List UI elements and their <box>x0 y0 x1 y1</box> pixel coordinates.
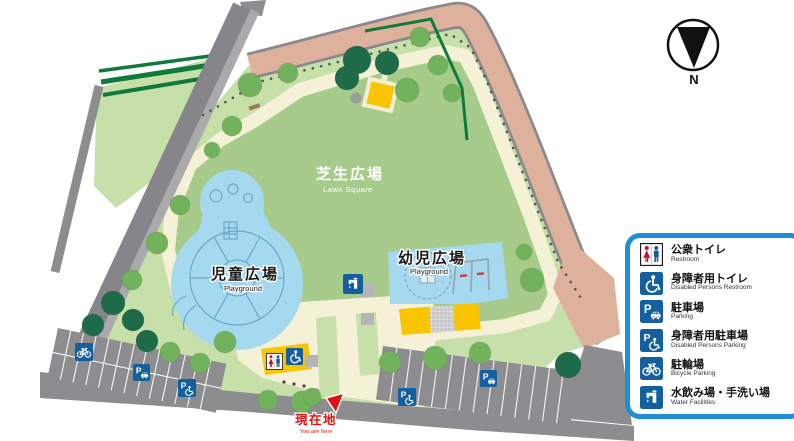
compass-n-label: N <box>689 72 698 87</box>
restroom-icon <box>640 243 663 266</box>
parking-icon <box>640 300 663 323</box>
water-facilities-icon <box>640 386 663 409</box>
park-map-page: P P <box>0 0 794 441</box>
legend-label-en: Restroom <box>671 257 726 264</box>
disabled-parking-icon <box>640 329 663 352</box>
children-plaza-label-ja: 児童広場 <box>210 265 279 283</box>
legend-label-en: Disabled Persons Restroom <box>671 285 752 292</box>
legend-label-en: Disabled Persons Parking <box>671 343 748 350</box>
restroom-icon <box>266 353 282 369</box>
legend-label-en: Parking <box>671 314 704 321</box>
current-location-label-en: You are here <box>300 429 333 435</box>
legend-item-disabled-parking: 身障者用駐車場 Disabled Persons Parking <box>640 329 794 352</box>
disabled-parking-icon <box>178 379 196 397</box>
water-facilities-icon <box>343 274 363 294</box>
compass: N <box>668 20 718 87</box>
children-plaza-label-en: Playground <box>224 284 262 293</box>
lawn-square-label-en: Lawn Square <box>323 185 373 194</box>
current-location-label-ja: 現在地 <box>295 412 337 427</box>
legend-label-en: Bicycle Parking <box>671 371 715 378</box>
toddler-plaza-label-ja: 幼児広場 <box>398 249 466 267</box>
legend-label-en: Water Facilities <box>671 400 770 407</box>
legend-item-parking: 駐車場 Parking <box>640 300 794 323</box>
legend-panel: 公衆トイレ Restroom 身障者用トイレ Disabled Persons … <box>625 233 794 419</box>
disabled-parking-icon <box>398 388 416 406</box>
disabled-restroom-icon <box>286 348 303 365</box>
parking-icon <box>480 370 497 387</box>
disabled-restroom-icon <box>640 272 663 295</box>
legend-item-disabled-restroom: 身障者用トイレ Disabled Persons Restroom <box>640 272 794 295</box>
bicycle-parking-icon <box>75 343 93 361</box>
lawn-square-label-ja: 芝生広場 <box>316 165 384 183</box>
legend-item-restroom: 公衆トイレ Restroom <box>640 243 794 266</box>
legend-item-water-facilities: 水飲み場・手洗い場 Water Facilities <box>640 386 794 409</box>
parking-icon <box>133 364 150 381</box>
bicycle-parking-icon <box>640 357 663 380</box>
legend-item-bicycle-parking: 駐輪場 Bicycle Parking <box>640 357 794 380</box>
toddler-plaza-label-en: Playground <box>410 267 448 276</box>
legend-label-ja: 身障者用駐車場 <box>671 331 748 343</box>
